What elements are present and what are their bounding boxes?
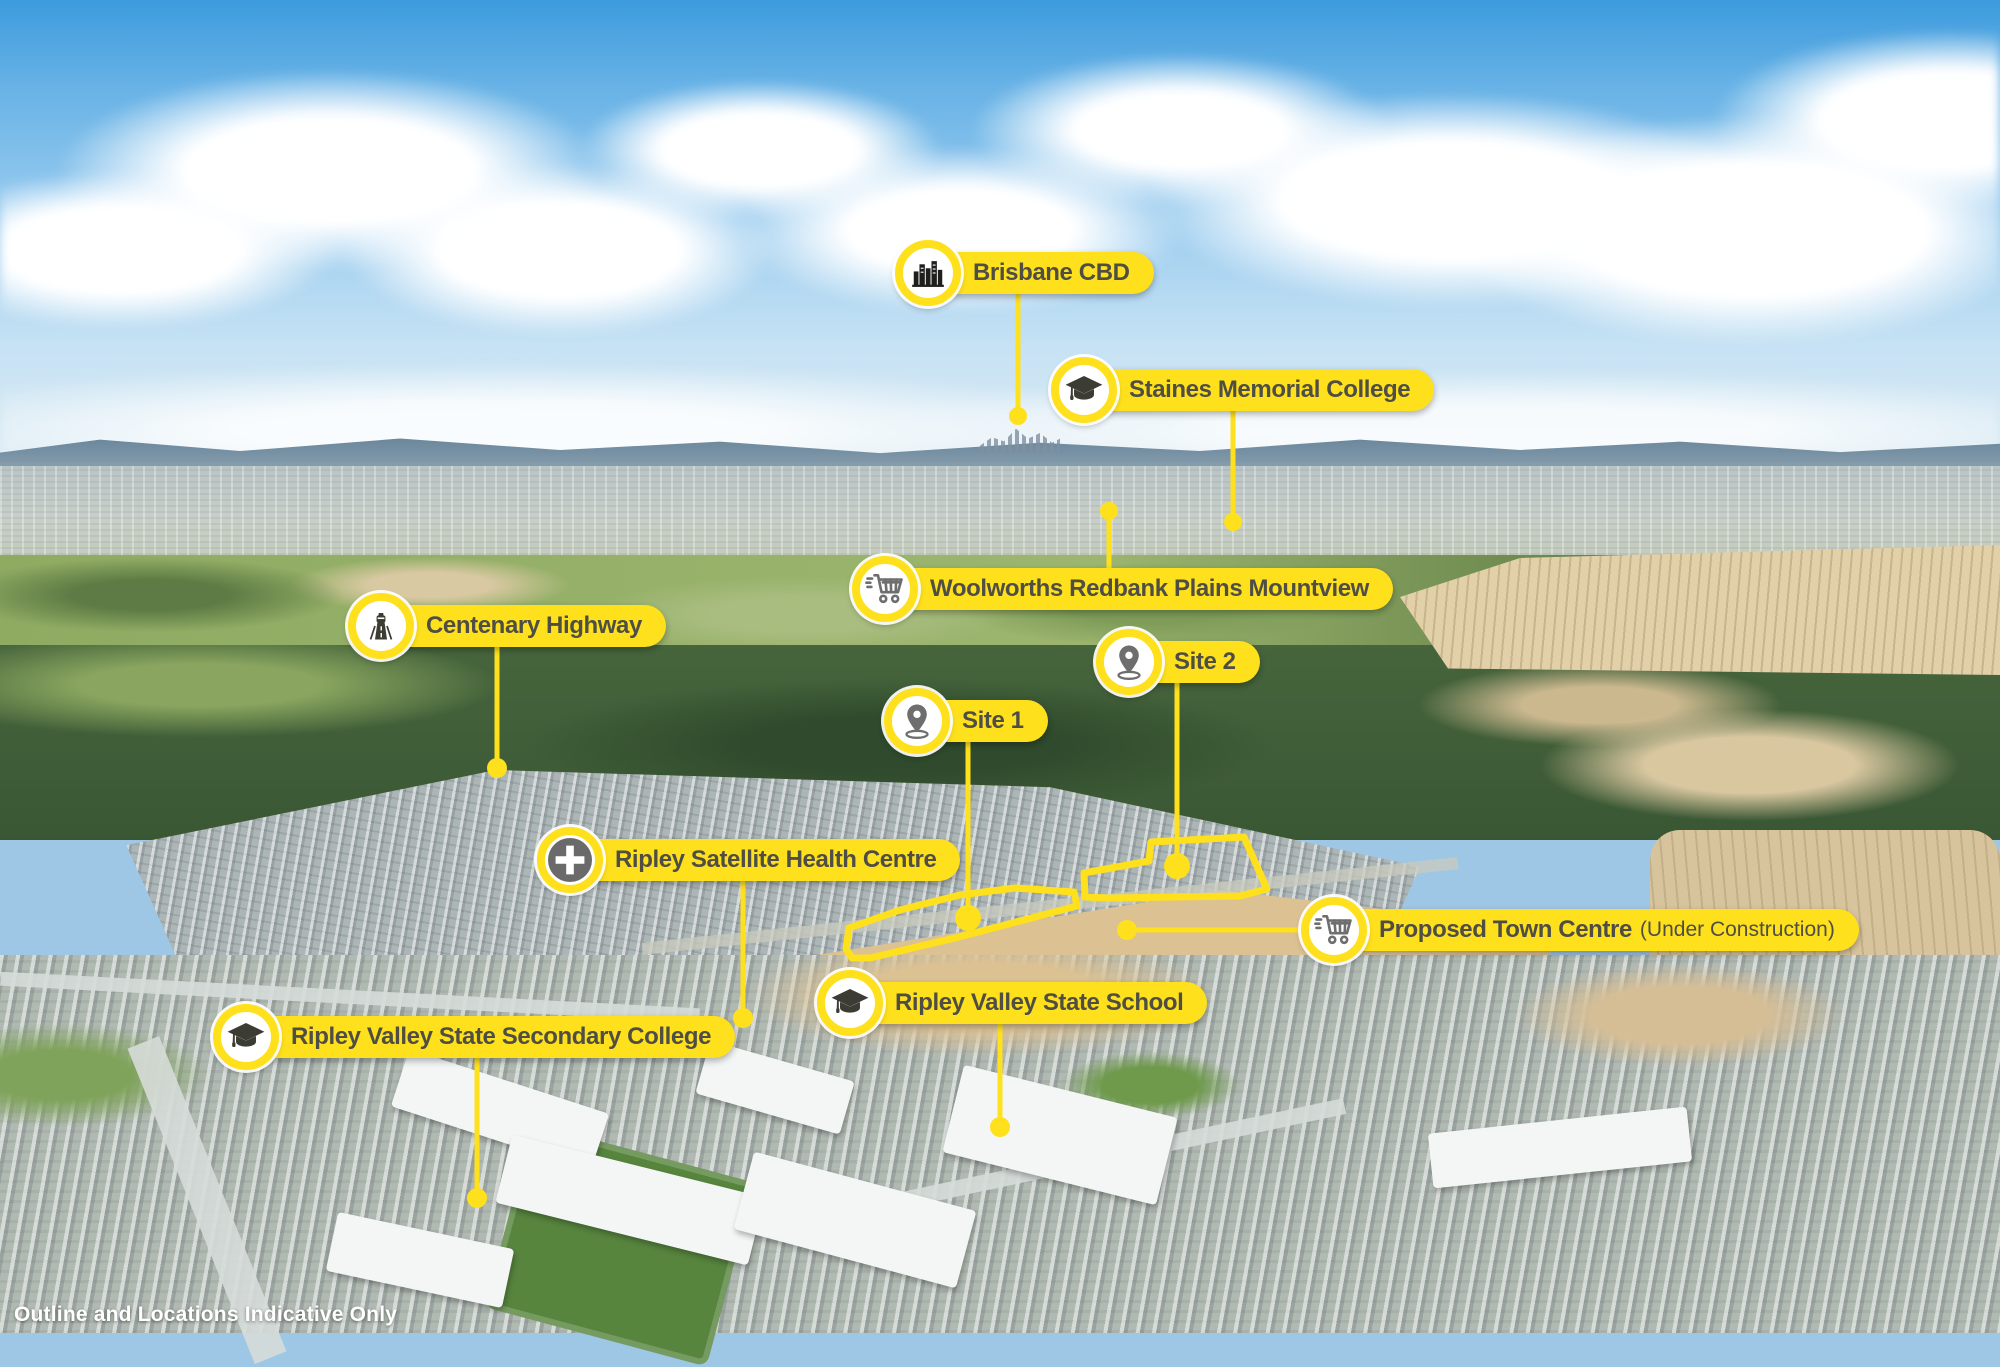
shopping-cart-icon <box>1301 897 1367 963</box>
graduation-cap-icon <box>1051 357 1117 423</box>
marker-label-text: Ripley Valley State School <box>895 982 1183 1024</box>
graduation-cap-icon <box>213 1004 279 1070</box>
staines-memorial-college-marker: Staines Memorial College <box>1051 357 1117 423</box>
ripley-satellite-health-centre-label: Ripley Satellite Health Centre <box>557 839 960 881</box>
disclaimer-text: Outline and Locations Indicative Only <box>14 1303 397 1327</box>
site-2-marker: Site 2 <box>1096 629 1162 695</box>
ripley-valley-state-secondary-college-label: Ripley Valley State Secondary College <box>233 1016 735 1058</box>
marker-sublabel-text: (Under Construction) <box>1640 909 1835 951</box>
proposed-town-centre-label: Proposed Town Centre(Under Construction) <box>1321 909 1859 951</box>
brisbane-cbd-marker: Brisbane CBD <box>895 240 961 306</box>
site-1-marker: Site 1 <box>884 688 950 754</box>
marker-label-text: Staines Memorial College <box>1129 369 1410 411</box>
marker-label-text: Site 2 <box>1174 641 1236 683</box>
staines-memorial-college-label: Staines Memorial College <box>1071 369 1434 411</box>
marker-label-text: Brisbane CBD <box>973 252 1130 294</box>
ripley-satellite-health-centre-marker: Ripley Satellite Health Centre <box>537 827 603 893</box>
map-pin-icon <box>1096 629 1162 695</box>
city-skyline-icon <box>895 240 961 306</box>
ripley-valley-state-secondary-college-marker: Ripley Valley State Secondary College <box>213 1004 279 1070</box>
ripley-valley-state-school-marker: Ripley Valley State School <box>817 970 883 1036</box>
marker-label-text: Ripley Valley State Secondary College <box>291 1016 711 1058</box>
marker-label-text: Ripley Satellite Health Centre <box>615 839 936 881</box>
marker-label-text: Centenary Highway <box>426 605 642 647</box>
ripley-valley-state-school-label: Ripley Valley State School <box>837 982 1207 1024</box>
marker-label-text: Site 1 <box>962 700 1024 742</box>
graduation-cap-icon <box>817 970 883 1036</box>
proposed-town-centre-marker: Proposed Town Centre(Under Construction) <box>1301 897 1367 963</box>
marker-label-text: Woolworths Redbank Plains Mountview <box>930 568 1369 610</box>
highway-icon <box>348 593 414 659</box>
location-markers: Brisbane CBDStaines Memorial CollegeWool… <box>0 0 2000 1333</box>
centenary-highway-marker: Centenary Highway <box>348 593 414 659</box>
woolworths-redbank-plains-mountview-label: Woolworths Redbank Plains Mountview <box>872 568 1393 610</box>
shopping-cart-icon <box>852 556 918 622</box>
medical-cross-icon <box>537 827 603 893</box>
map-pin-icon <box>884 688 950 754</box>
marker-label-text: Proposed Town Centre <box>1379 909 1632 951</box>
woolworths-redbank-plains-mountview-marker: Woolworths Redbank Plains Mountview <box>852 556 918 622</box>
